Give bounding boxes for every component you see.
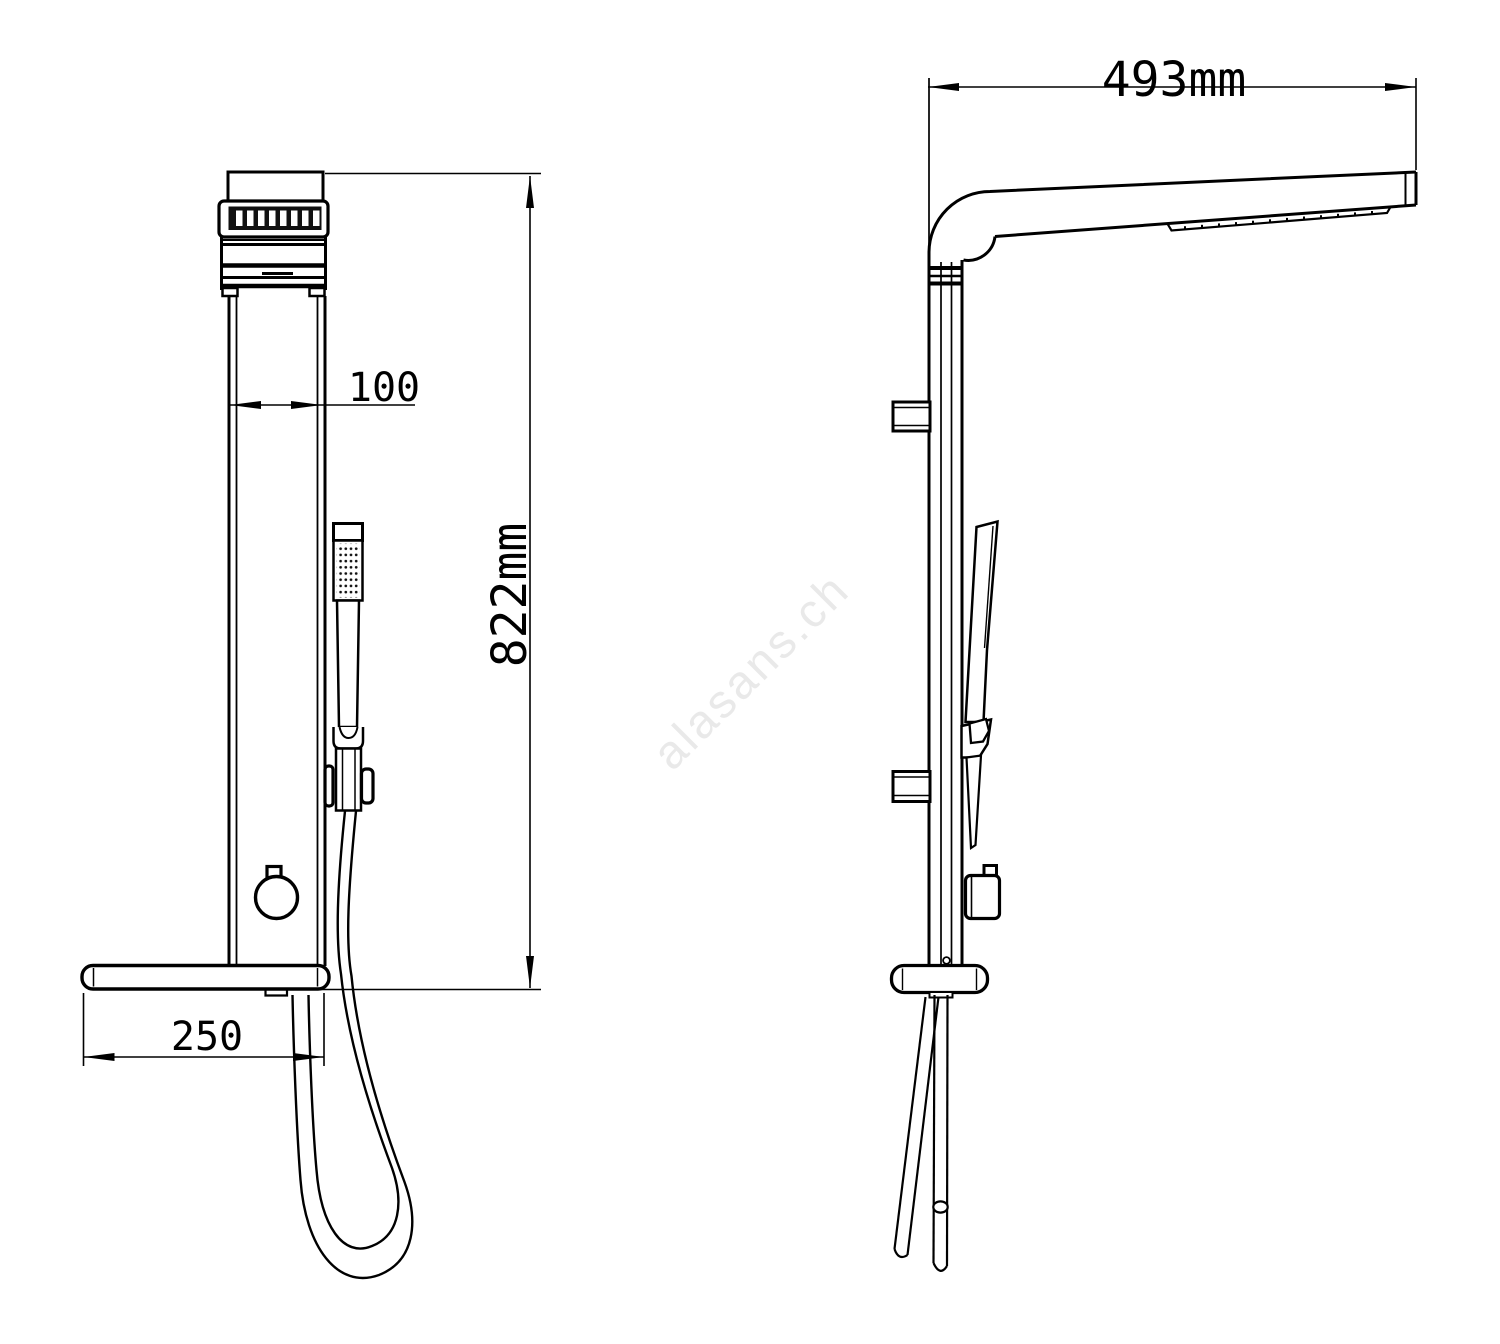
- dim-label-250: 250: [171, 1014, 243, 1060]
- head-top-cap: [228, 172, 323, 203]
- arrow-up-icon: [526, 176, 534, 208]
- dimension-height-822: 822mm: [262, 174, 541, 990]
- holder-knob: [362, 769, 374, 803]
- hand-shower-side: [962, 522, 998, 849]
- watermark-text: alasans.ch: [642, 562, 860, 780]
- holder-left-tab: [325, 766, 333, 806]
- dimension-arm-493: 493mm: [928, 52, 1416, 170]
- dim-label-822mm: 822mm: [482, 523, 538, 668]
- hand-shower-handle: [337, 601, 359, 728]
- diverter-knob-side: [966, 866, 1000, 919]
- head-bands: [222, 237, 326, 296]
- hose-nipple: [943, 957, 950, 964]
- front-view: 100 822mm 250: [82, 172, 541, 1278]
- hose-connector: [933, 1201, 947, 1212]
- arrow-left-icon: [84, 1053, 115, 1061]
- dim-label-493mm: 493mm: [1102, 52, 1247, 108]
- rain-shower-head-front: [219, 172, 328, 296]
- hand-shower-cap: [334, 524, 363, 541]
- technical-drawing-page: alasans.ch: [0, 0, 1500, 1344]
- shower-hose-side: [895, 995, 948, 1271]
- hand-shower-blade: [966, 522, 998, 723]
- shelf-front: [82, 966, 329, 996]
- wall-bracket-lower: [893, 772, 930, 802]
- knob-dial: [256, 877, 298, 919]
- diverter-knob-front: [256, 867, 298, 919]
- hand-shower-front: [325, 524, 373, 811]
- shelf-stub: [930, 992, 953, 998]
- wall-bracket-upper: [893, 402, 930, 431]
- overhead-shower-arm: [929, 172, 1416, 260]
- hand-shower-nozzles: [337, 544, 361, 598]
- arrow-left-icon: [230, 401, 261, 409]
- shower-hose-front: [293, 811, 413, 1278]
- shelf-side: [892, 966, 988, 998]
- side-view: 493mm: [892, 52, 1417, 1271]
- hand-shower-tail: [967, 756, 982, 849]
- dim-label-100: 100: [348, 365, 420, 411]
- arrow-right-icon: [1385, 83, 1416, 91]
- dimension-depth-250: 250: [84, 993, 325, 1066]
- shower-panel-drawing: alasans.ch: [0, 0, 1500, 1344]
- arrow-right-icon: [293, 1053, 324, 1061]
- arrow-left-icon: [928, 83, 959, 91]
- hand-shower-holder: [336, 749, 361, 811]
- arrow-down-icon: [526, 956, 534, 988]
